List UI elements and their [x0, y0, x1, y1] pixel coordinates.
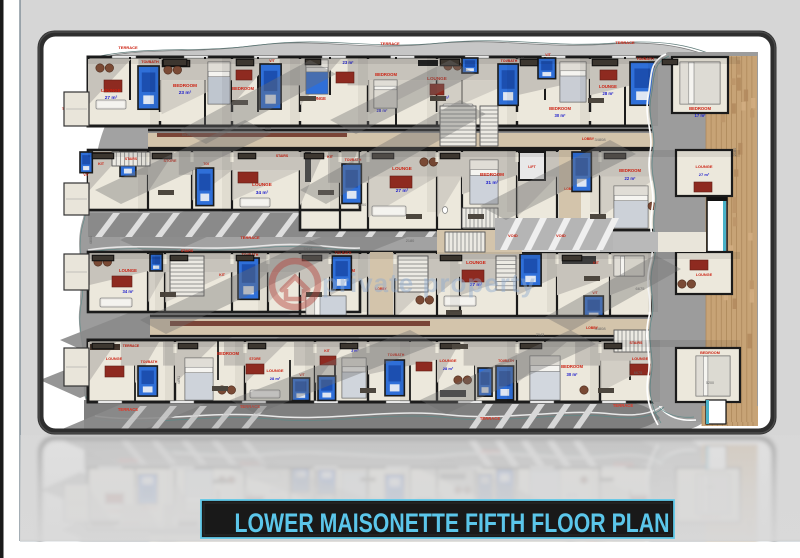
svg-text:LOWER MAISONETTE FIFTH FLOOR P: LOWER MAISONETTE FIFTH FLOOR PLAN	[235, 508, 670, 538]
